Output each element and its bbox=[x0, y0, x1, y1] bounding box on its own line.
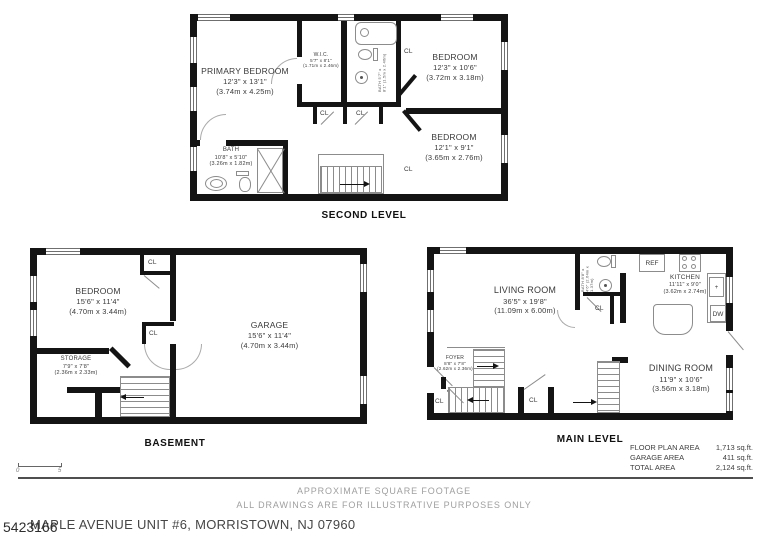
room-label-primary-bedroom: PRIMARY BEDROOM 12'3" x 13'1" (3.74m x 4… bbox=[195, 66, 295, 97]
bathtub-drain bbox=[360, 28, 369, 37]
wall bbox=[226, 140, 288, 146]
window bbox=[427, 310, 434, 332]
toilet-icon bbox=[611, 255, 616, 268]
closet-label: CL bbox=[595, 305, 604, 312]
room-dims-metric: (1.71m x 2.46m) bbox=[302, 63, 340, 68]
second-level-plan: PRIMARY BEDROOM 12'3" x 13'1" (3.74m x 4… bbox=[190, 14, 508, 201]
door-leaf bbox=[109, 346, 131, 368]
fridge-box: REF bbox=[639, 254, 665, 272]
room-dims: 12'3" x 13'1" bbox=[195, 77, 295, 87]
closet-label: CL bbox=[320, 110, 329, 117]
room-name: BATH bbox=[200, 147, 262, 155]
sink-drain bbox=[360, 76, 363, 79]
room-dims: 15'6" x 11'4" bbox=[48, 297, 148, 307]
room-dims-metric: (3.74m x 4.25m) bbox=[195, 87, 295, 97]
room-dims-metric: (1.5m x 2.46m) bbox=[381, 54, 386, 84]
toilet-icon bbox=[597, 256, 611, 267]
stair-arrow bbox=[477, 366, 493, 367]
room-label-bath-top: BATH 5'7" x 8'1" (1.5m x 2.46m) bbox=[378, 52, 387, 92]
door-line bbox=[524, 374, 546, 390]
wall bbox=[142, 322, 174, 326]
door-arc bbox=[200, 114, 226, 140]
scale-tick bbox=[61, 463, 62, 467]
room-name: BEDROOM bbox=[48, 286, 148, 297]
wall bbox=[140, 271, 174, 275]
divider-rule bbox=[18, 477, 753, 479]
main-level-plan: REF + DW BATH 8'8" x 4'6" (2.64m x 1.37m… bbox=[427, 247, 733, 420]
area-label: GARAGE AREA bbox=[630, 453, 684, 463]
basement-title: BASEMENT bbox=[30, 438, 320, 449]
room-dims-metric: (3.26m x 1.82m) bbox=[200, 161, 262, 168]
stair-arrow bbox=[573, 402, 591, 403]
window bbox=[501, 42, 508, 70]
wall bbox=[283, 146, 288, 194]
room-dims-metric: (2.36m x 2.33m) bbox=[42, 370, 110, 377]
room-dims-metric: (4.70m x 3.44m) bbox=[222, 341, 317, 351]
wall bbox=[190, 140, 200, 146]
room-dims-metric: (3.62m x 2.74m) bbox=[648, 289, 722, 296]
window bbox=[441, 14, 473, 21]
wall bbox=[341, 21, 347, 106]
room-name: DINING ROOM bbox=[630, 363, 732, 375]
room-label-garage: GARAGE 15'6" x 11'4" (4.70m x 3.44m) bbox=[222, 320, 317, 351]
room-label-bedroom-bottom: BEDROOM 12'1" x 9'1" (3.65m x 2.76m) bbox=[410, 132, 498, 163]
window bbox=[360, 264, 367, 292]
burner bbox=[691, 264, 696, 269]
window bbox=[198, 14, 230, 21]
wall bbox=[518, 387, 524, 413]
area-value: 411 sq.ft. bbox=[723, 453, 753, 463]
window bbox=[501, 135, 508, 163]
door-arc bbox=[144, 344, 170, 370]
window bbox=[726, 277, 733, 303]
wall bbox=[379, 107, 383, 124]
wall bbox=[95, 393, 102, 423]
closet-label: CL bbox=[435, 398, 444, 405]
room-name: BEDROOM bbox=[410, 132, 498, 143]
window bbox=[440, 247, 466, 254]
address-text: MAPLE AVENUE UNIT #6, MORRISTOWN, NJ 079… bbox=[30, 517, 355, 532]
scale-bar bbox=[18, 466, 62, 467]
window bbox=[46, 248, 80, 255]
stair-arrow bbox=[340, 184, 364, 185]
area-value: 1,713 sq.ft. bbox=[716, 443, 753, 453]
window bbox=[726, 393, 733, 411]
room-dims-metric: (11.09m x 6.00m) bbox=[455, 306, 595, 316]
room-label-dining: DINING ROOM 11'9" x 10'6" (3.56m x 3.18m… bbox=[630, 363, 732, 394]
area-row: GARAGE AREA 411 sq.ft. bbox=[630, 453, 753, 463]
scale-start-label: 0 bbox=[16, 468, 19, 474]
second-level-title: SECOND LEVEL bbox=[205, 210, 523, 221]
room-label-living: LIVING ROOM 36'5" x 19'8" (11.09m x 6.00… bbox=[455, 285, 595, 316]
scale-tick bbox=[18, 463, 19, 467]
window bbox=[360, 376, 367, 404]
room-dims-metric: (3.65m x 2.76m) bbox=[410, 153, 498, 163]
closet-label: CL bbox=[149, 330, 158, 337]
burner bbox=[691, 256, 696, 261]
area-row: TOTAL AREA 2,124 sq.ft. bbox=[630, 463, 753, 473]
room-dims: 11'9" x 10'6" bbox=[630, 375, 732, 385]
wall bbox=[427, 247, 733, 254]
footer-line2: ALL DRAWINGS ARE FOR ILLUSTRATIVE PURPOS… bbox=[0, 500, 768, 510]
footer-line1: APPROXIMATE SQUARE FOOTAGE bbox=[0, 486, 768, 496]
wall bbox=[406, 108, 501, 114]
area-label: TOTAL AREA bbox=[630, 463, 675, 473]
stairs bbox=[473, 349, 505, 387]
stair-arrow bbox=[473, 400, 489, 401]
room-label-bath: BATH 10'8" x 5'10" (3.26m x 1.82m) bbox=[200, 147, 262, 168]
wall bbox=[142, 326, 146, 344]
closet-label: CL bbox=[356, 110, 365, 117]
toilet-icon bbox=[236, 171, 249, 176]
room-name: BEDROOM bbox=[412, 52, 498, 63]
room-label-bedroom-top: BEDROOM 12'3" x 10'6" (3.72m x 3.18m) bbox=[412, 52, 498, 83]
room-name: PRIMARY BEDROOM bbox=[195, 66, 295, 77]
room-name: GARAGE bbox=[222, 320, 317, 331]
toilet-icon bbox=[239, 177, 251, 192]
sink-bowl bbox=[210, 179, 223, 188]
closet-label: CL bbox=[148, 259, 157, 266]
wall bbox=[37, 348, 109, 354]
burner bbox=[682, 256, 687, 261]
window bbox=[190, 37, 197, 63]
room-label-kitchen: KITCHEN 11'11" x 9'0" (3.62m x 2.74m) bbox=[648, 274, 722, 296]
room-dims-metric: (2.62m x 2.36m) bbox=[433, 366, 477, 371]
wall bbox=[427, 413, 733, 420]
room-label-storage: STORAGE 7'9" x 7'8" (2.36m x 2.33m) bbox=[42, 356, 110, 377]
fridge-label: REF bbox=[646, 260, 659, 267]
room-name: KITCHEN bbox=[648, 274, 722, 282]
floor-plan-canvas: PRIMARY BEDROOM 12'3" x 13'1" (3.74m x 4… bbox=[0, 0, 768, 542]
window bbox=[427, 270, 434, 292]
sink-drain bbox=[604, 284, 607, 287]
closet-label: CL bbox=[404, 166, 413, 173]
room-dims: 36'5" x 19'8" bbox=[455, 297, 595, 307]
room-label-wic: W.I.C. 5'7" x 8'1" (1.71m x 2.46m) bbox=[302, 52, 340, 69]
room-dims: 15'6" x 11'4" bbox=[222, 331, 317, 341]
wall bbox=[343, 107, 347, 124]
window bbox=[30, 310, 37, 336]
room-label-foyer: FOYER 8'8" x 7'8" (2.62m x 2.36m) bbox=[433, 355, 477, 372]
stair-arrow bbox=[126, 397, 144, 398]
room-dims: 7'9" x 7'8" bbox=[42, 364, 110, 371]
thin-line bbox=[447, 347, 505, 348]
wall bbox=[190, 194, 508, 201]
wall bbox=[441, 377, 446, 389]
room-dims-metric: (3.56m x 3.18m) bbox=[630, 384, 732, 394]
wall bbox=[313, 107, 317, 124]
window bbox=[30, 276, 37, 302]
closet-label: CL bbox=[529, 397, 538, 404]
wall bbox=[548, 387, 554, 413]
wall bbox=[170, 255, 176, 321]
area-value: 2,124 sq.ft. bbox=[716, 463, 753, 473]
closet-label: CL bbox=[404, 48, 413, 55]
toilet-icon bbox=[358, 49, 372, 60]
room-dims: 12'3" x 10'6" bbox=[412, 63, 498, 73]
room-dims-metric: (4.70m x 3.44m) bbox=[48, 307, 148, 317]
area-label: FLOOR PLAN AREA bbox=[630, 443, 700, 453]
room-name: STORAGE bbox=[42, 356, 110, 364]
dishwasher-label: DW bbox=[713, 311, 724, 318]
room-dims: 11'11" x 9'0" bbox=[648, 282, 722, 289]
stairs bbox=[320, 166, 382, 193]
area-row: FLOOR PLAN AREA 1,713 sq.ft. bbox=[630, 443, 753, 453]
dishwasher-box: DW bbox=[710, 305, 726, 322]
watermark-number: 5423166 bbox=[3, 519, 58, 535]
scale-end-label: 5 bbox=[58, 468, 61, 474]
room-dims: 12'1" x 9'1" bbox=[410, 143, 498, 153]
wall bbox=[610, 296, 614, 324]
window bbox=[190, 147, 197, 171]
room-dims: 10'8" x 5'10" bbox=[200, 155, 262, 162]
wall bbox=[30, 248, 367, 255]
room-name: LIVING ROOM bbox=[455, 285, 595, 297]
room-label-bedroom: BEDROOM 15'6" x 11'4" (4.70m x 3.44m) bbox=[48, 286, 148, 317]
window bbox=[338, 14, 354, 21]
wall bbox=[620, 273, 626, 323]
room-dims-metric: (3.72m x 3.18m) bbox=[412, 73, 498, 83]
kitchen-island bbox=[653, 304, 693, 335]
stairs bbox=[597, 361, 620, 413]
wall bbox=[30, 248, 37, 424]
door-arc bbox=[176, 344, 202, 370]
wall bbox=[30, 417, 367, 424]
basement-plan: BEDROOM 15'6" x 11'4" (4.70m x 3.44m) GA… bbox=[30, 248, 367, 424]
burner bbox=[682, 264, 687, 269]
area-table: FLOOR PLAN AREA 1,713 sq.ft. GARAGE AREA… bbox=[630, 443, 753, 473]
